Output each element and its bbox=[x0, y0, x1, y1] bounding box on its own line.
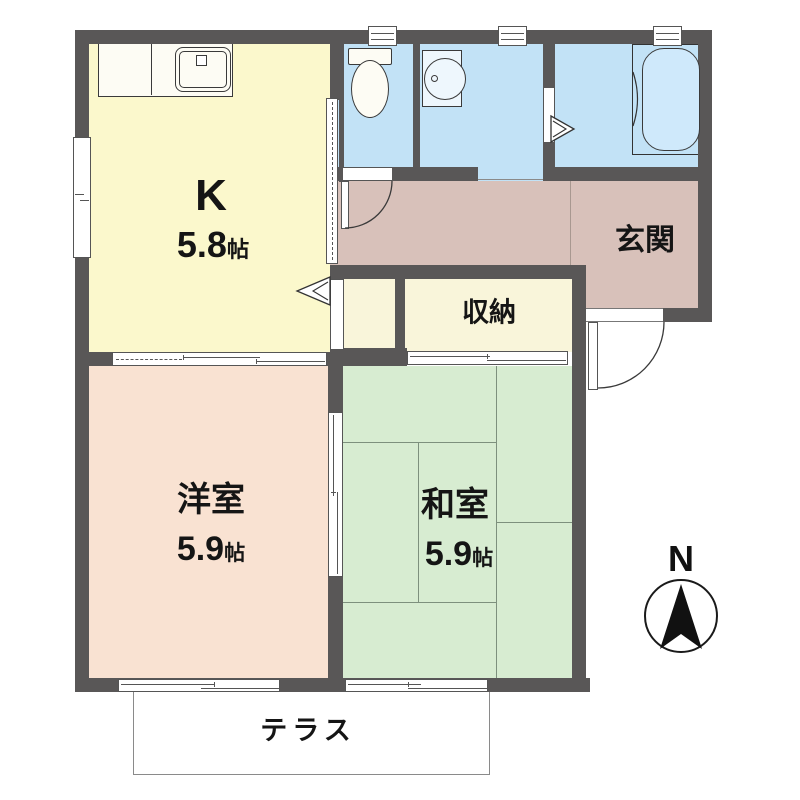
washbasin-faucet-dot bbox=[431, 75, 438, 82]
wall-entrance-bottom bbox=[663, 308, 712, 322]
wall-washroom-bath-upper bbox=[543, 44, 555, 90]
louver-line bbox=[501, 39, 524, 40]
vent-window bbox=[653, 26, 682, 46]
door-panel bbox=[256, 361, 325, 362]
size-value: 5.8 bbox=[177, 224, 227, 265]
entrance-step-line bbox=[570, 181, 571, 265]
wall-wet-bottom-mid bbox=[392, 167, 478, 181]
door-panel bbox=[348, 684, 421, 685]
toilet-bowl bbox=[351, 60, 389, 118]
tatami-line bbox=[418, 442, 419, 602]
door-panel bbox=[487, 360, 566, 361]
compass-circle bbox=[644, 579, 718, 653]
sash-line bbox=[80, 200, 89, 201]
wall-hallway-bottom bbox=[330, 265, 572, 279]
japanese-room-label: 和室 bbox=[421, 488, 489, 522]
panel-tick bbox=[408, 682, 409, 687]
toilet-door-threshold bbox=[343, 167, 392, 181]
terrace-label: テラス bbox=[260, 718, 355, 745]
door-panel bbox=[408, 688, 487, 689]
compass-north-label: N bbox=[668, 541, 694, 577]
entrance-label: 玄関 bbox=[615, 226, 675, 256]
panel-tick bbox=[214, 682, 215, 687]
kitchen-western-sliding-door bbox=[112, 352, 327, 366]
louver-line bbox=[656, 33, 679, 34]
size-unit: 帖 bbox=[472, 547, 493, 570]
louver-line bbox=[656, 39, 679, 40]
wall-kitchen-right bbox=[330, 44, 344, 100]
japanese-terrace-sliding-door bbox=[345, 679, 488, 692]
wall-under-pantry bbox=[330, 348, 407, 366]
japanese-room-size: 5.9帖 bbox=[425, 537, 493, 571]
western-terrace-sliding-door bbox=[118, 679, 280, 692]
door-panel bbox=[183, 357, 260, 358]
bathtub-icon bbox=[642, 48, 700, 151]
kitchen-sink-icon bbox=[175, 47, 231, 92]
front-door-leaf bbox=[588, 322, 598, 390]
floor-plan: N K 5.8帖 玄関 収納 洋室 5.9帖 和室 5.9帖 テラス bbox=[0, 0, 800, 800]
size-value: 5.9 bbox=[425, 535, 472, 573]
kitchen-label: K bbox=[195, 174, 227, 218]
kitchen-window bbox=[73, 137, 91, 258]
counter-divider bbox=[151, 44, 152, 95]
sash-line bbox=[75, 194, 84, 195]
wall-pantry-storage bbox=[395, 265, 405, 352]
tatami-line bbox=[343, 602, 496, 603]
storage-label: 収納 bbox=[462, 300, 516, 327]
wall-toilet-washroom bbox=[413, 44, 420, 181]
slide-track bbox=[116, 359, 182, 360]
pantry-door-opening bbox=[330, 279, 344, 350]
toilet-door-leaf bbox=[341, 181, 349, 229]
wall-right-lower bbox=[572, 265, 586, 692]
washroom-entry-line bbox=[478, 179, 543, 180]
front-door-arc bbox=[598, 322, 664, 388]
storage-sliding-door bbox=[407, 351, 568, 365]
panel-tick bbox=[256, 359, 257, 364]
louver-line bbox=[371, 33, 394, 34]
slide-track bbox=[332, 102, 333, 260]
panel-tick bbox=[487, 354, 488, 359]
size-value: 5.9 bbox=[177, 530, 224, 568]
size-unit: 帖 bbox=[224, 542, 245, 565]
front-door-threshold bbox=[586, 308, 663, 322]
tatami-line bbox=[496, 522, 572, 523]
panel-tick bbox=[183, 355, 184, 360]
size-unit: 帖 bbox=[227, 237, 249, 262]
wall-wet-bottom-right bbox=[543, 167, 712, 181]
kitchen-hall-sliding-door bbox=[326, 98, 338, 264]
louver-line bbox=[371, 39, 394, 40]
door-panel bbox=[121, 684, 214, 685]
louver-line bbox=[501, 33, 524, 34]
door-panel bbox=[337, 492, 338, 574]
western-japanese-sliding-door bbox=[328, 412, 343, 577]
western-room-label: 洋室 bbox=[177, 483, 245, 517]
door-panel bbox=[410, 356, 490, 357]
door-panel bbox=[201, 688, 279, 689]
door-panel bbox=[333, 415, 334, 496]
western-room-floor bbox=[89, 366, 328, 678]
western-room-size: 5.9帖 bbox=[177, 532, 245, 566]
vent-window bbox=[498, 26, 527, 46]
hallway-floor bbox=[330, 181, 572, 265]
vent-window bbox=[368, 26, 397, 46]
kitchen-size: 5.8帖 bbox=[177, 227, 249, 263]
tatami-line bbox=[343, 442, 496, 443]
faucet-icon bbox=[196, 55, 207, 66]
bath-door-opening bbox=[543, 88, 555, 142]
panel-tick bbox=[331, 492, 336, 493]
